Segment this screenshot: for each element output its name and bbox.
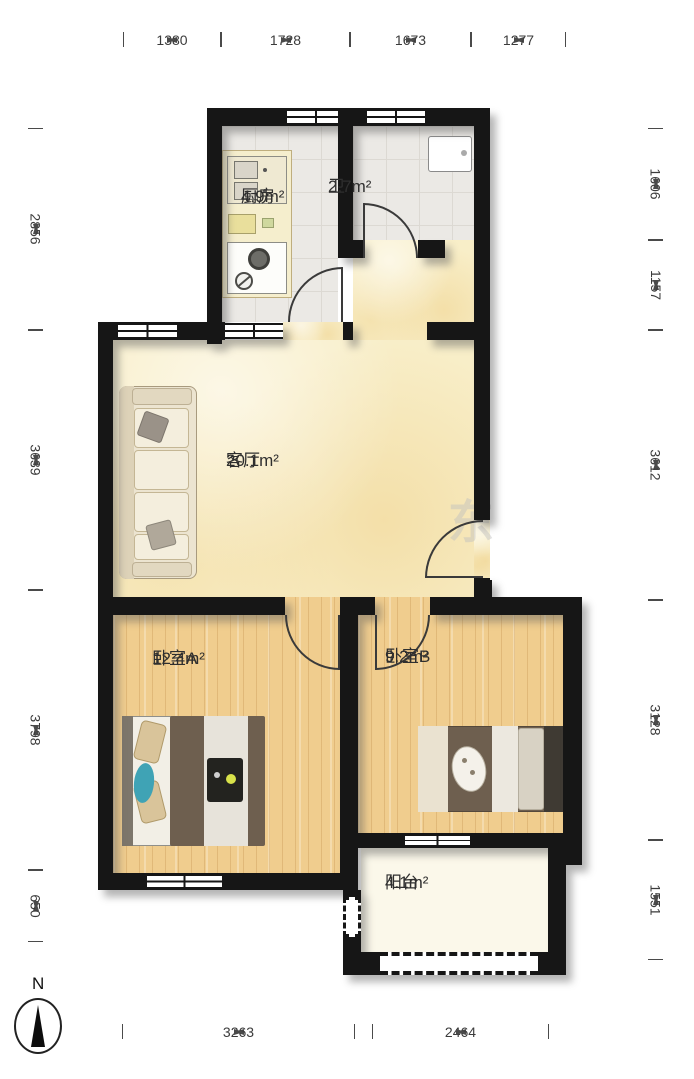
bath-door-leaf: [363, 203, 365, 258]
living-window: [118, 323, 177, 339]
compass: N: [10, 972, 70, 1072]
dim-right-1: 1606: [646, 128, 666, 240]
wall: [207, 126, 222, 344]
kitchen-door-leaf: [341, 267, 343, 322]
wall: [340, 597, 375, 615]
balcony-window: [380, 952, 538, 975]
wall: [343, 890, 361, 897]
wall: [474, 580, 492, 615]
floorplan-page: 东: [0, 0, 694, 1079]
dim-bottom-1: 3263: [122, 1022, 355, 1042]
bedroom-b-window: [405, 834, 470, 847]
wall: [548, 833, 582, 865]
wall: [343, 322, 353, 340]
dim-right-5: 1551: [646, 840, 666, 960]
dim-right-3: 3612: [646, 330, 666, 600]
dim-left-2: 3639: [26, 330, 46, 590]
dim-left-4: 650: [26, 870, 46, 942]
wall: [113, 597, 285, 615]
kitchen-window: [287, 109, 345, 125]
wall: [98, 340, 113, 890]
dim-top-1: 1380: [123, 30, 221, 50]
kitchen-pass-window: [225, 323, 283, 339]
compass-needle-icon: [31, 1005, 45, 1047]
wall: [474, 108, 490, 520]
bedroom-b-door-leaf: [375, 615, 377, 670]
wall: [343, 952, 380, 975]
bedroom-a-window: [147, 874, 222, 889]
dim-right-4: 3128: [646, 600, 666, 840]
compass-north-label: N: [32, 974, 44, 994]
dim-right-2: 1157: [646, 240, 666, 330]
dim-top-4: 1277: [471, 30, 566, 50]
wall: [538, 952, 566, 975]
dim-left-1: 2856: [26, 128, 46, 330]
bedroom-a-door-leaf: [338, 615, 340, 670]
wall: [430, 597, 474, 615]
wall: [563, 597, 582, 848]
wall: [418, 240, 445, 258]
entry-door-leaf: [425, 576, 483, 578]
wall: [98, 873, 352, 890]
bath-window: [367, 109, 425, 125]
wall: [427, 322, 474, 340]
dim-left-3: 3798: [26, 590, 46, 870]
balcony-side-opening: [343, 897, 361, 937]
wall: [345, 240, 363, 258]
dim-bottom-2: 2464: [372, 1022, 549, 1042]
wall: [340, 615, 358, 890]
walls-layer: [0, 0, 694, 1079]
dim-top-3: 1673: [350, 30, 471, 50]
dim-top-2: 1728: [221, 30, 350, 50]
